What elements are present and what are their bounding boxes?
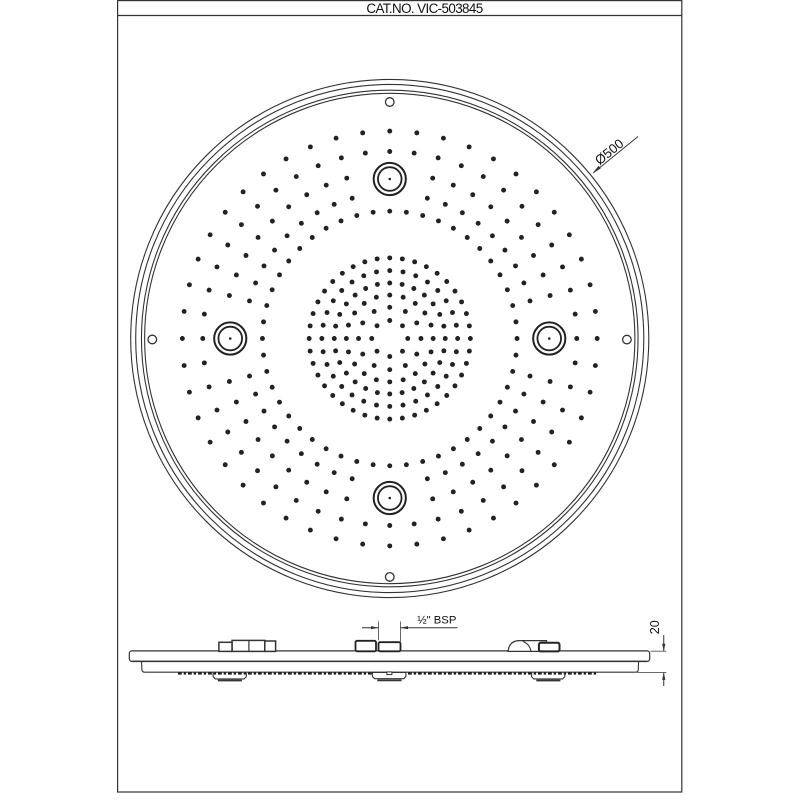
svg-text:Ø500: Ø500	[592, 136, 627, 168]
svg-text:½" BSP: ½" BSP	[417, 614, 456, 626]
svg-text:20: 20	[648, 620, 662, 634]
svg-text:CAT.NO. VIC-503845: CAT.NO. VIC-503845	[366, 1, 482, 16]
